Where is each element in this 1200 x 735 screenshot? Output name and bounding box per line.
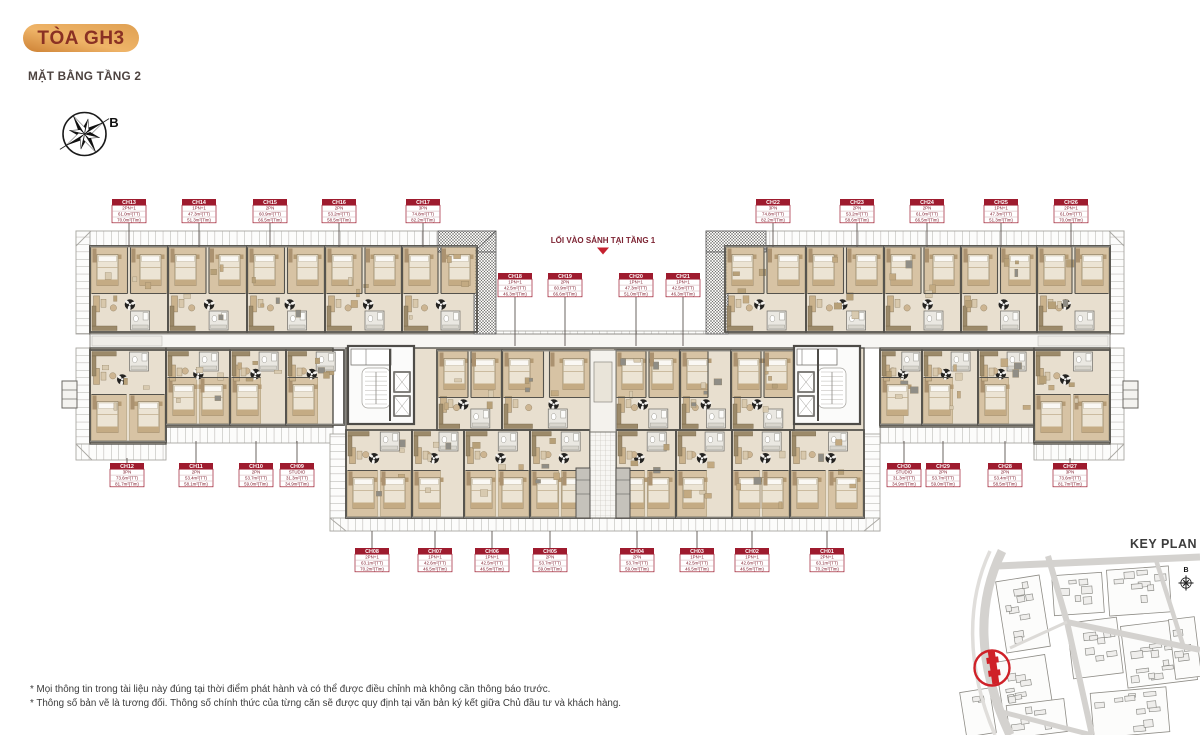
svg-text:66.6m²(Tim): 66.6m²(Tim) [553,291,577,296]
svg-text:73.6m²(TT): 73.6m²(TT) [116,476,138,481]
svg-text:66.5m²(Tim): 66.5m²(Tim) [258,217,282,222]
svg-text:STUDIO: STUDIO [896,470,913,475]
svg-text:81.7m²(Tim): 81.7m²(Tim) [115,481,139,486]
svg-text:53.7m²(TT): 53.7m²(TT) [932,476,954,481]
svg-text:3PN: 3PN [123,470,132,475]
svg-text:46.3m²(Tim): 46.3m²(Tim) [503,291,527,296]
svg-text:61.0m²(TT): 61.0m²(TT) [916,212,938,217]
svg-text:60.9m²(TT): 60.9m²(TT) [554,286,576,291]
svg-text:2PN+1: 2PN+1 [122,206,136,211]
svg-text:59.0m²(Tim): 59.0m²(Tim) [244,481,268,486]
svg-text:47.3m²(TT): 47.3m²(TT) [990,212,1012,217]
svg-text:46.5m²(Tim): 46.5m²(Tim) [480,566,504,571]
svg-text:53.4m²(TT): 53.4m²(TT) [185,476,207,481]
svg-text:* Mọi thông tin trong tài liệu: * Mọi thông tin trong tài liệu này đúng … [30,684,550,695]
svg-text:2PN: 2PN [939,470,948,475]
svg-text:61.0m²(TT): 61.0m²(TT) [118,212,140,217]
svg-text:1PN+1: 1PN+1 [428,555,442,560]
svg-text:1PN+1: 1PN+1 [994,206,1008,211]
svg-text:70.0m²(Tim): 70.0m²(Tim) [1059,217,1083,222]
svg-text:82.2m²(Tim): 82.2m²(Tim) [761,217,785,222]
svg-text:42.6m²(TT): 42.6m²(TT) [424,561,446,566]
svg-text:73.6m²(TT): 73.6m²(TT) [1059,476,1081,481]
svg-text:58.1m²(Tim): 58.1m²(Tim) [184,481,208,486]
svg-text:42.5m²(TT): 42.5m²(TT) [481,561,503,566]
svg-text:1PN+1: 1PN+1 [192,206,206,211]
svg-text:B: B [1183,567,1188,574]
svg-text:53.7m²(TT): 53.7m²(TT) [626,561,648,566]
svg-text:46.5m²(Tim): 46.5m²(Tim) [423,566,447,571]
svg-text:66.5m²(Tim): 66.5m²(Tim) [915,217,939,222]
svg-text:59.0m²(Tim): 59.0m²(Tim) [931,481,955,486]
svg-text:47.3m²(TT): 47.3m²(TT) [625,286,647,291]
svg-text:74.8m²(TT): 74.8m²(TT) [762,212,784,217]
svg-text:42.5m²(TT): 42.5m²(TT) [672,286,694,291]
svg-text:70.0m²(Tim): 70.0m²(Tim) [117,217,141,222]
svg-text:34.9m²(Tim): 34.9m²(Tim) [285,481,309,486]
svg-text:2PN+1: 2PN+1 [1064,206,1078,211]
svg-text:42.5m²(TT): 42.5m²(TT) [686,561,708,566]
svg-text:58.6m²(Tim): 58.6m²(Tim) [845,217,869,222]
svg-text:KEY PLAN: KEY PLAN [1130,537,1197,551]
svg-text:2PN: 2PN [335,206,344,211]
svg-text:63.1m²(TT): 63.1m²(TT) [361,561,383,566]
svg-text:46.3m²(Tim): 46.3m²(Tim) [671,291,695,296]
svg-text:2PN: 2PN [1001,470,1010,475]
svg-text:58.5m²(Tim): 58.5m²(Tim) [993,481,1017,486]
svg-text:2PN: 2PN [923,206,932,211]
svg-text:LỐI VÀO SẢNH TẠI TẦNG 1: LỐI VÀO SẢNH TẠI TẦNG 1 [551,235,656,245]
svg-text:46.5m²(Tim): 46.5m²(Tim) [740,566,764,571]
svg-text:53.2m²(TT): 53.2m²(TT) [846,212,868,217]
svg-text:1PN+1: 1PN+1 [629,280,643,285]
svg-text:70.2m²(Tim): 70.2m²(Tim) [360,566,384,571]
svg-text:42.5m²(TT): 42.5m²(TT) [504,286,526,291]
svg-text:81.7m²(Tim): 81.7m²(Tim) [1058,481,1082,486]
svg-text:42.6m²(TT): 42.6m²(TT) [741,561,763,566]
svg-text:B: B [109,115,118,130]
svg-text:53.4m²(TT): 53.4m²(TT) [994,476,1016,481]
svg-text:51.3m²(Tim): 51.3m²(Tim) [989,217,1013,222]
svg-text:1PN+1: 1PN+1 [676,280,690,285]
svg-text:51.0m²(Tim): 51.0m²(Tim) [624,291,648,296]
svg-text:1PN+1: 1PN+1 [745,555,759,560]
svg-text:47.3m²(TT): 47.3m²(TT) [188,212,210,217]
svg-text:59.0m²(Tim): 59.0m²(Tim) [625,566,649,571]
svg-text:31.3m²(TT): 31.3m²(TT) [286,476,308,481]
svg-text:63.1m²(TT): 63.1m²(TT) [816,561,838,566]
svg-text:3PN: 3PN [769,206,778,211]
svg-text:2PN+1: 2PN+1 [365,555,379,560]
svg-text:53.7m²(TT): 53.7m²(TT) [539,561,561,566]
svg-text:2PN: 2PN [252,470,261,475]
svg-text:31.3m²(TT): 31.3m²(TT) [893,476,915,481]
svg-text:34.9m²(Tim): 34.9m²(Tim) [892,481,916,486]
svg-text:61.0m²(TT): 61.0m²(TT) [1060,212,1082,217]
svg-text:STUDIO: STUDIO [289,470,306,475]
svg-text:* Thông số bản vẽ là tương đối: * Thông số bản vẽ là tương đối. Thông số… [30,698,621,709]
svg-text:82.2m²(Tim): 82.2m²(Tim) [411,217,435,222]
svg-text:46.5m²(Tim): 46.5m²(Tim) [685,566,709,571]
svg-text:59.0m²(Tim): 59.0m²(Tim) [538,566,562,571]
svg-text:2PN: 2PN [192,470,201,475]
svg-text:2PN+1: 2PN+1 [820,555,834,560]
svg-text:60.9m²(TT): 60.9m²(TT) [259,212,281,217]
svg-text:2PN: 2PN [853,206,862,211]
svg-text:2PN: 2PN [561,280,570,285]
svg-text:TÒA GH3: TÒA GH3 [37,27,124,49]
svg-text:2PN: 2PN [633,555,642,560]
svg-text:MẶT BẰNG TẦNG 2: MẶT BẰNG TẦNG 2 [28,69,141,83]
svg-text:70.2m²(Tim): 70.2m²(Tim) [815,566,839,571]
svg-text:53.7m²(TT): 53.7m²(TT) [245,476,267,481]
svg-text:1PN+1: 1PN+1 [690,555,704,560]
svg-text:1PN+1: 1PN+1 [485,555,499,560]
svg-text:58.5m²(Tim): 58.5m²(Tim) [327,217,351,222]
svg-text:3PN: 3PN [1066,470,1075,475]
svg-text:1PN+1: 1PN+1 [508,280,522,285]
svg-text:74.8m²(TT): 74.8m²(TT) [412,212,434,217]
svg-text:3PN: 3PN [419,206,428,211]
svg-text:2PN: 2PN [266,206,275,211]
svg-text:53.2m²(TT): 53.2m²(TT) [328,212,350,217]
svg-text:51.3m²(Tim): 51.3m²(Tim) [187,217,211,222]
svg-text:2PN: 2PN [546,555,555,560]
